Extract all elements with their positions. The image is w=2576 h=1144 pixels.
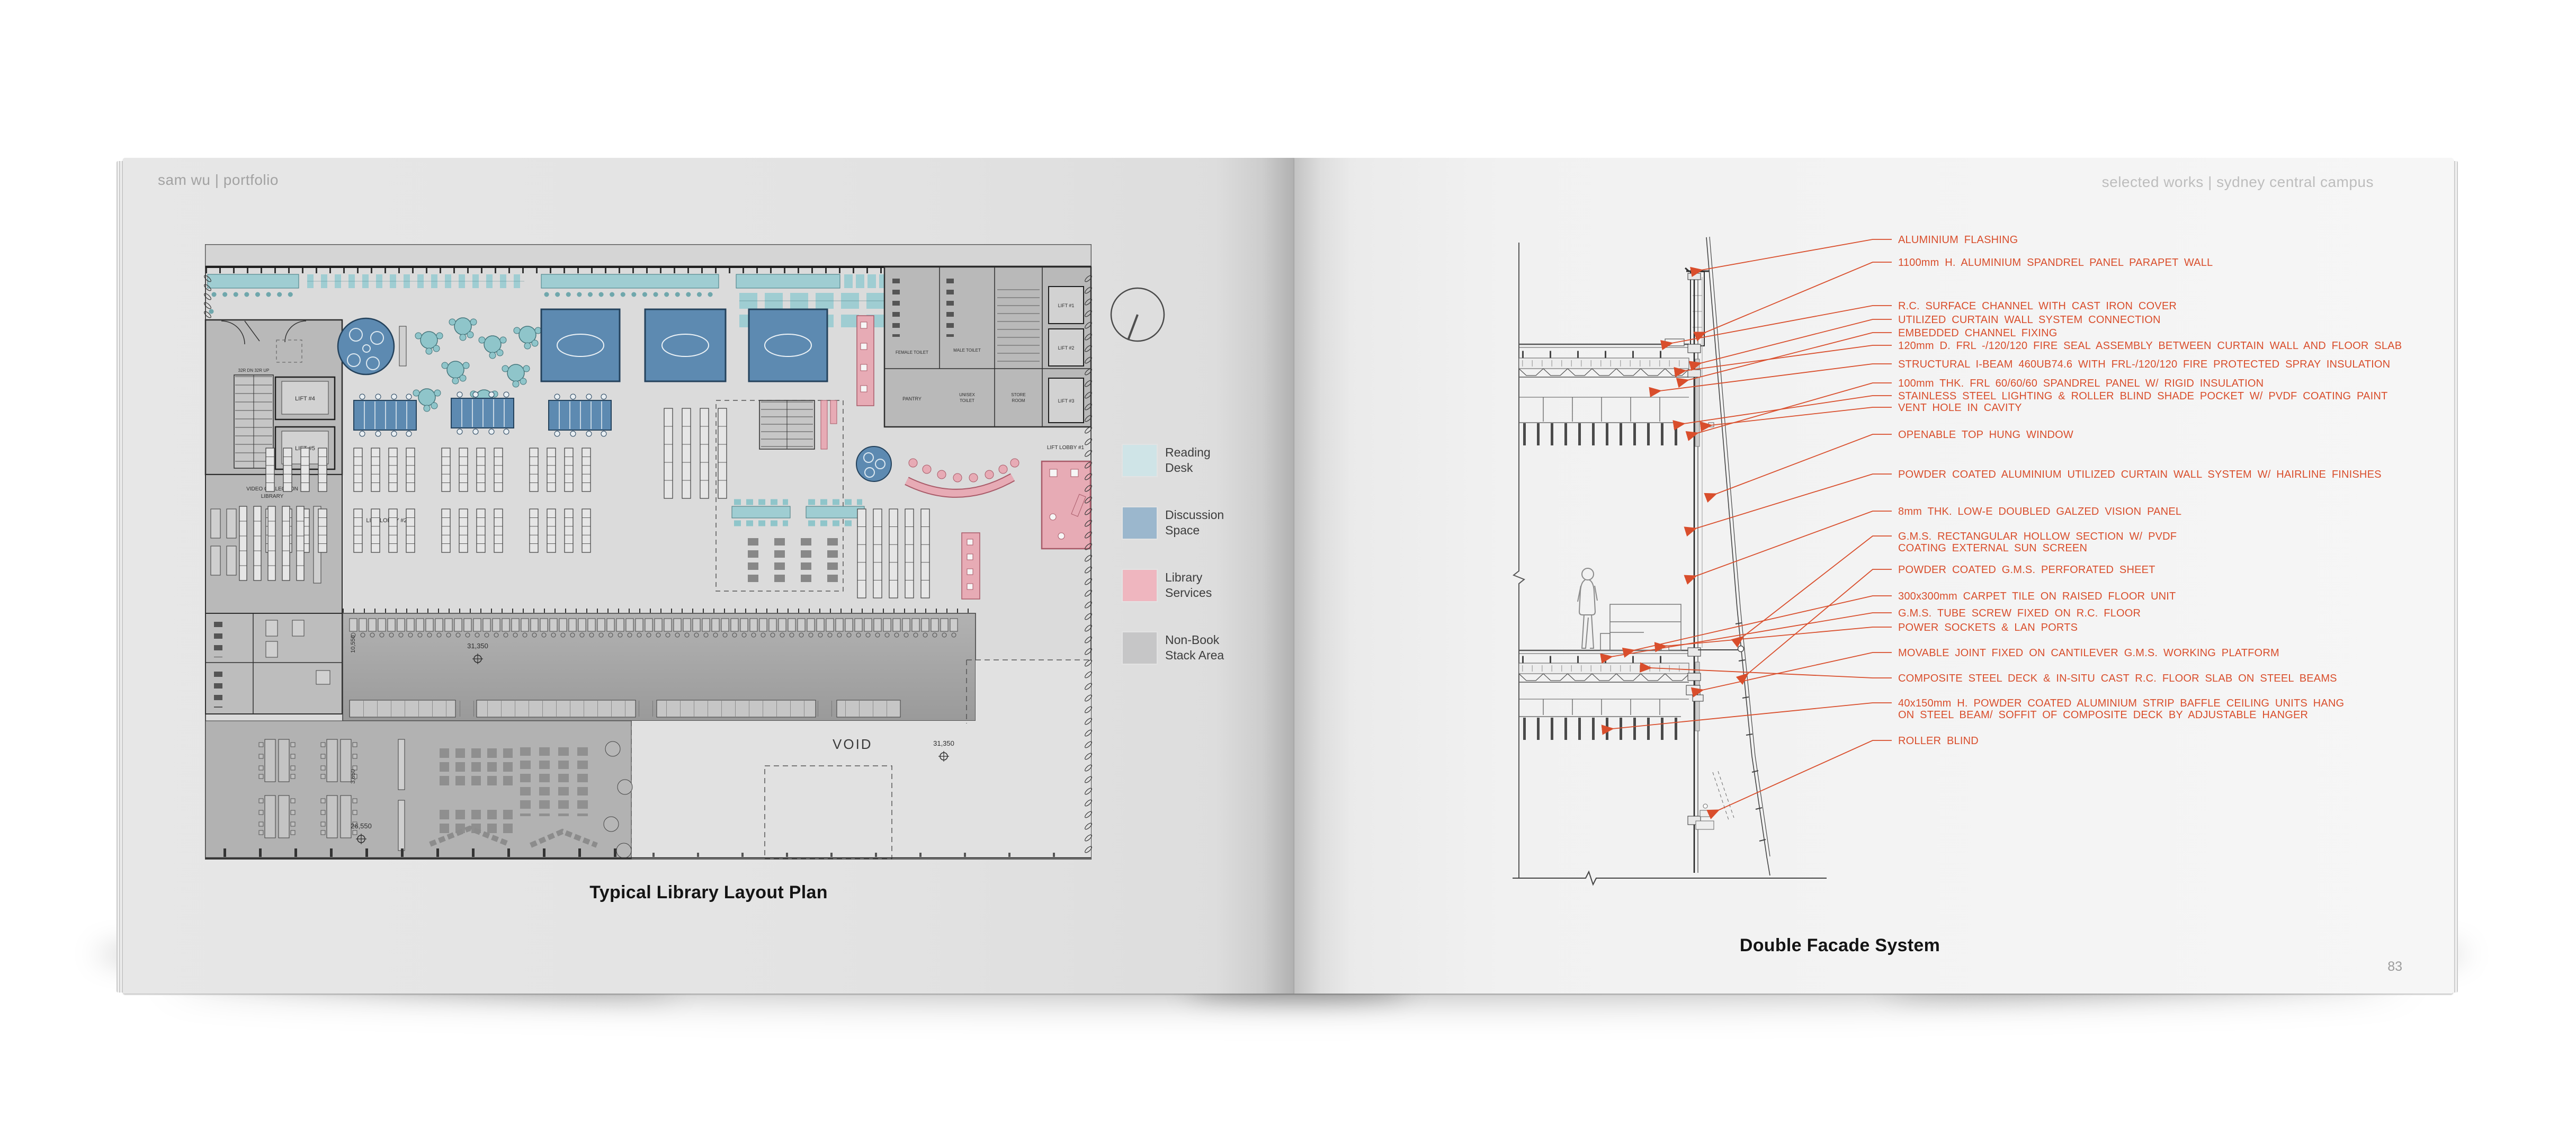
annotation-label: STAINLESS STEEL LIGHTING & ROLLER BLIND … bbox=[1898, 390, 2387, 402]
upper-floor-assembly bbox=[1519, 339, 1689, 434]
svg-text:LIFT #1: LIFT #1 bbox=[1058, 303, 1075, 308]
discussion-rooms bbox=[541, 309, 827, 381]
library-floor-plan: LIFT #4 LIFT #5 32R DN 32R UP LIFT LOBBY… bbox=[202, 242, 1094, 872]
ground-line bbox=[1513, 872, 1827, 884]
annotation-label: EMBEDDED CHANNEL FIXING bbox=[1898, 327, 2058, 339]
annotation-label: ALUMINIUM FLASHING bbox=[1898, 234, 2018, 246]
annotation-label: 300x300mm CARPET TILE ON RAISED FLOOR UN… bbox=[1898, 591, 2176, 602]
annotation-label: OPENABLE TOP HUNG WINDOW bbox=[1898, 429, 2073, 441]
sun-screen bbox=[1698, 237, 1770, 875]
legend-item-non-book-stack: Non-BookStack Area bbox=[1122, 631, 1281, 665]
stair-note: 32R DN 32R UP bbox=[238, 368, 270, 373]
left-page-caption: Typical Library Layout Plan bbox=[202, 882, 1215, 903]
lift4-label: LIFT #4 bbox=[295, 396, 315, 402]
annotation-label: 8mm THK. LOW-E DOUBLED GALZED VISION PAN… bbox=[1898, 506, 2181, 517]
annotation-label: POWDER COATED G.M.S. PERFORATED SHEET bbox=[1898, 564, 2155, 576]
page-edges-right bbox=[2453, 161, 2458, 993]
annotation-label: R.C. SURFACE CHANNEL WITH CAST IRON COVE… bbox=[1898, 300, 2177, 312]
annotation-label: 1100mm H. ALUMINIUM SPANDREL PANEL PARAP… bbox=[1898, 257, 2213, 269]
legend-swatch-library-services bbox=[1122, 569, 1158, 602]
portfolio-spread: sam wu | portfolio bbox=[0, 0, 2576, 1144]
discussion-pod-2 bbox=[856, 446, 891, 481]
legend-item-reading-desk: ReadingDesk bbox=[1122, 444, 1281, 477]
svg-text:LIFT #2: LIFT #2 bbox=[1058, 345, 1075, 351]
legend-item-discussion-space: DiscussionSpace bbox=[1122, 506, 1281, 540]
facade-section-drawing: ALUMINIUM FLASHING1100mm H. ALUMINIUM SP… bbox=[1294, 158, 2453, 994]
right-page-caption: Double Facade System bbox=[1294, 935, 2385, 956]
annotation-label: MOVABLE JOINT FIXED ON CANTILEVER G.M.S.… bbox=[1898, 647, 2279, 659]
annotation-label: UTILIZED CURTAIN WALL SYSTEM CONNECTION bbox=[1898, 314, 2161, 326]
svg-text:STORE: STORE bbox=[1011, 392, 1025, 397]
annotation-label: COATING EXTERNAL SUN SCREEN bbox=[1898, 542, 2087, 554]
left-running-header: sam wu | portfolio bbox=[158, 172, 279, 189]
page-edges-left bbox=[117, 161, 123, 993]
annotation-label: 100mm THK. FRL 60/60/60 SPANDREL PANEL W… bbox=[1898, 378, 2264, 389]
svg-text:26,550: 26,550 bbox=[351, 822, 372, 830]
north-indicator-icon bbox=[1107, 284, 1170, 347]
library-services-room bbox=[1042, 461, 1090, 549]
roller-blind bbox=[1696, 771, 1734, 829]
annotation-label: ROLLER BLIND bbox=[1898, 735, 1979, 747]
annotation-label: 40x150mm H. POWDER COATED ALUMINIUM STRI… bbox=[1898, 698, 2344, 709]
annotation-label: 120mm D. FRL -/120/120 FIRE SEAL ASSEMBL… bbox=[1898, 340, 2402, 352]
annotation-label: ON STEEL BEAM/ SOFFIT OF COMPOSITE DECK … bbox=[1898, 709, 2308, 721]
void-label: VOID bbox=[833, 736, 873, 752]
legend-swatch-reading-desk bbox=[1122, 444, 1158, 477]
shelf bbox=[399, 326, 406, 366]
svg-text:LIBRARY: LIBRARY bbox=[261, 494, 284, 499]
svg-text:ROOM: ROOM bbox=[1012, 398, 1025, 403]
legend-item-library-services: LibraryServices bbox=[1122, 569, 1281, 602]
dimension-b: 3,650 bbox=[350, 769, 356, 784]
discussion-pod-1 bbox=[338, 318, 394, 374]
left-page: sam wu | portfolio bbox=[123, 158, 1294, 994]
person-figure bbox=[1578, 568, 1597, 648]
svg-text:FEMALE TOILET: FEMALE TOILET bbox=[896, 350, 928, 355]
svg-text:31,350: 31,350 bbox=[467, 642, 488, 650]
portfolio-book: sam wu | portfolio bbox=[123, 158, 2453, 994]
plan-legend: ReadingDesk DiscussionSpace LibraryServi… bbox=[1122, 444, 1281, 694]
left-toilet-block bbox=[205, 613, 342, 714]
svg-text:TOILET: TOILET bbox=[960, 398, 974, 403]
annotation-label: VENT HOLE IN CAVITY bbox=[1898, 402, 2022, 414]
lower-floor-assembly bbox=[1519, 646, 1689, 729]
svg-text:PANTRY: PANTRY bbox=[902, 396, 922, 401]
legend-swatch-discussion-space bbox=[1122, 506, 1158, 540]
curtain-wall bbox=[1688, 272, 1714, 873]
annotation-label: POWER SOCKETS & LAN PORTS bbox=[1898, 622, 2078, 633]
desk-outline bbox=[1600, 604, 1681, 650]
annotation-label: POWDER COATED ALUMINIUM UTILIZED CURTAIN… bbox=[1898, 469, 2382, 480]
page-number: 83 bbox=[2387, 959, 2402, 975]
dimension-a: 10,550 bbox=[350, 635, 356, 653]
svg-text:31,350: 31,350 bbox=[933, 739, 954, 747]
annotation-label: COMPOSITE STEEL DECK & IN-SITU CAST R.C.… bbox=[1898, 673, 2337, 684]
bottom-study-zone: 26,550 bbox=[205, 721, 632, 858]
right-core: FEMALE TOILET MALE TOILET LIFT #1 LIFT #… bbox=[884, 267, 1091, 427]
lift-lobby1-label: LIFT LOBBY #1 bbox=[1047, 445, 1085, 451]
svg-text:MALE TOILET: MALE TOILET bbox=[953, 348, 981, 353]
interior-wall-line bbox=[1514, 243, 1524, 878]
right-page: selected works | sydney central campus bbox=[1294, 158, 2453, 994]
legend-swatch-non-book-stack bbox=[1122, 631, 1158, 665]
non-book-stack-band bbox=[343, 611, 976, 721]
annotation-label: G.M.S. TUBE SCREW FIXED ON R.C. FLOOR bbox=[1898, 607, 2141, 619]
annotation-label: G.M.S. RECTANGULAR HOLLOW SECTION W/ PVD… bbox=[1898, 531, 2177, 542]
annotation-label: STRUCTURAL I-BEAM 460UB74.6 WITH FRL-/12… bbox=[1898, 359, 2390, 370]
svg-text:UNISEX: UNISEX bbox=[959, 392, 975, 397]
svg-text:LIFT #3: LIFT #3 bbox=[1058, 398, 1075, 404]
